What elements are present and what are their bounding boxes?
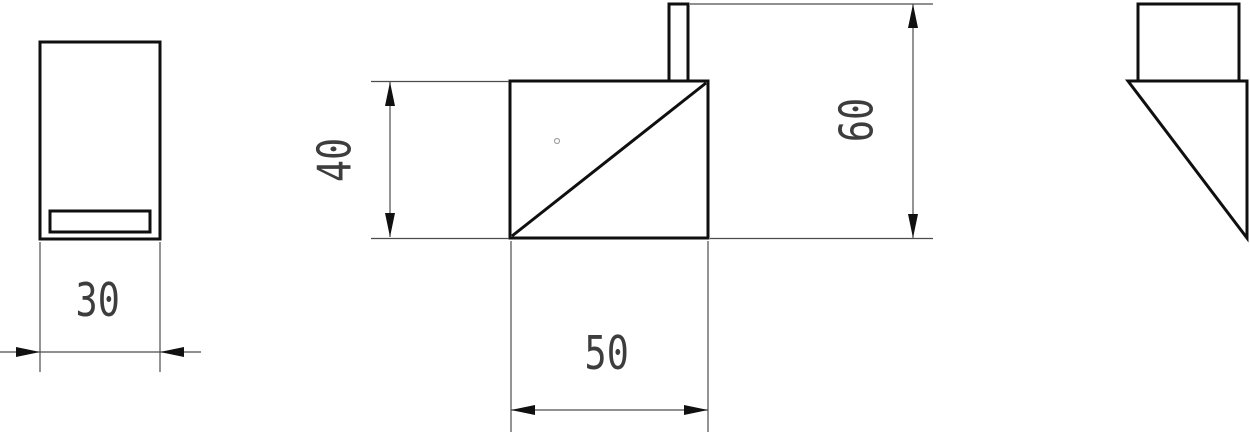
arrowhead-left (511, 405, 535, 415)
dimension-40 (371, 82, 509, 239)
center-point-mark (555, 139, 560, 144)
right-view-pin (1138, 4, 1239, 81)
right-view-triangle (1128, 81, 1247, 238)
front-view (510, 4, 708, 238)
arrowhead-up (908, 4, 918, 28)
arrowhead-down (908, 214, 918, 238)
left-view-outline (40, 42, 160, 239)
arrowhead-right (684, 405, 708, 415)
front-view-pin (669, 4, 688, 81)
right-view (1128, 4, 1247, 238)
arrowhead-right (16, 347, 40, 357)
drawing-canvas: 30 40 50 60 (0, 0, 1250, 432)
dimension-60 (690, 4, 933, 239)
left-view (40, 42, 160, 239)
left-view-slot (50, 211, 150, 232)
arrowhead-up (385, 82, 395, 106)
arrowhead-down (385, 213, 395, 237)
front-view-diagonal (512, 83, 706, 236)
arrowhead-left (160, 347, 184, 357)
